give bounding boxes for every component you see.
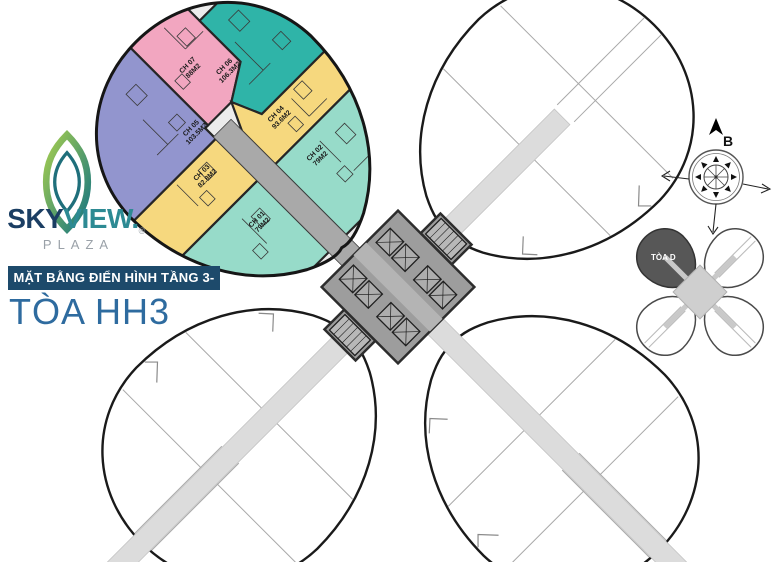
page: CH 07 88M2 CH 06 106.3M2 CH 05 103.5M2 C…	[0, 0, 780, 562]
floor-plan-graphic: CH 07 88M2 CH 06 106.3M2 CH 05 103.5M2 C…	[0, 0, 780, 562]
minimap: TÒA D	[626, 218, 775, 367]
north-label: B	[723, 133, 733, 149]
minimap-highlight-label: TÒA D	[651, 253, 676, 262]
north-arrow-icon	[709, 118, 723, 135]
